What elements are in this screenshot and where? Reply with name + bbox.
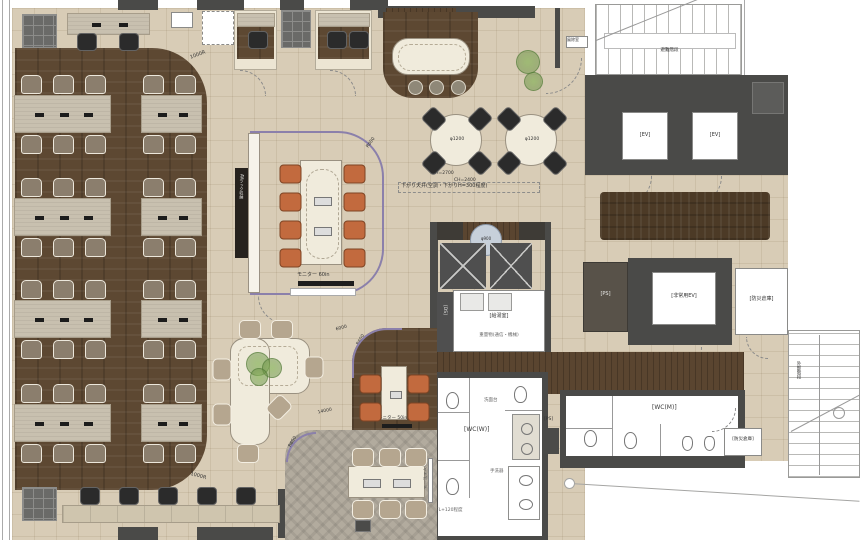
black-chair	[119, 487, 139, 505]
wall-segment	[118, 0, 158, 10]
lounge-chair	[379, 448, 401, 467]
wall-segment	[197, 0, 244, 10]
meeting-table-large	[300, 160, 342, 265]
cabinet-top-left	[22, 14, 57, 48]
table-inner-line	[306, 169, 339, 259]
desk-grommet	[35, 318, 44, 322]
orange-chair	[344, 165, 366, 184]
core-east-wall	[545, 222, 551, 352]
office-chair	[85, 178, 106, 197]
black-chair	[158, 487, 178, 505]
wall-segment	[280, 0, 304, 10]
office-chair	[175, 444, 196, 463]
stool	[451, 80, 466, 95]
emergency-elevator-shaft: [非常用EV]	[628, 258, 732, 345]
monitor-60in	[298, 281, 354, 286]
office-chair	[143, 238, 164, 257]
lounge-chair	[405, 500, 427, 519]
label-wind-lobby: 風除室	[567, 38, 579, 42]
counter-inner-line	[398, 44, 466, 71]
orange-chair	[280, 165, 302, 184]
desk-grommet	[179, 216, 188, 220]
desk-grommet	[179, 422, 188, 426]
work-table-6	[348, 466, 425, 498]
desk-grommet	[158, 113, 167, 117]
shaft-box-1	[440, 243, 486, 289]
desk-grommet	[84, 422, 93, 426]
desk-grommet	[179, 318, 188, 322]
desk-grommet	[35, 422, 44, 426]
black-chair	[80, 487, 100, 505]
stool	[408, 80, 423, 95]
cable-box	[314, 227, 332, 236]
label-ds: [DS]	[441, 305, 446, 315]
lounge-chair	[305, 357, 324, 379]
site-line-top-right	[744, 0, 745, 75]
label-kitchenette: [給湯室]	[453, 314, 545, 320]
office-chair	[21, 135, 42, 154]
ps-shaft-2	[543, 428, 559, 454]
cafe-island-counter	[392, 38, 470, 75]
lounge-chair	[271, 320, 293, 339]
office-chair	[21, 238, 42, 257]
label-ev-1: [EV]	[622, 133, 668, 139]
lounge-chair	[237, 444, 259, 463]
toilet-icon	[514, 386, 527, 403]
black-chair	[197, 487, 217, 505]
wall-segment	[197, 527, 273, 540]
vanity-counter	[512, 414, 540, 460]
office-chair	[143, 178, 164, 197]
bench-desk	[14, 95, 111, 133]
office-chair	[53, 238, 74, 257]
monitor-50in	[382, 424, 412, 428]
wall-segment	[560, 456, 745, 468]
office-chair	[143, 340, 164, 359]
label-heavy-equipment: 重量物(通信・機械)	[453, 334, 545, 339]
desk-grommet	[158, 422, 167, 426]
black-chair	[77, 33, 97, 51]
office-chair	[143, 384, 164, 403]
stair-marker	[833, 407, 845, 419]
cable-box	[390, 391, 402, 399]
orange-chair	[408, 403, 430, 422]
desk-grommet	[158, 216, 167, 220]
office-chair	[175, 75, 196, 94]
stairwell-top: 避難階段	[595, 4, 742, 75]
toilet-icon	[446, 478, 459, 495]
office-chair	[85, 444, 106, 463]
toilet-icon	[584, 430, 597, 447]
stall-partition	[469, 378, 470, 498]
stall-partition	[566, 428, 612, 429]
bench-desk	[141, 404, 202, 442]
stair-diagonal	[791, 389, 860, 432]
printer-icon	[171, 12, 193, 28]
office-chair	[85, 75, 106, 94]
office-chair	[175, 178, 196, 197]
label-vanity: 洗面台	[484, 399, 498, 404]
copier-icon	[202, 11, 234, 45]
sink-unit	[460, 293, 484, 311]
label-round-table-2: φ1200	[506, 138, 558, 143]
label-hand-basin: 手洗器	[490, 470, 504, 475]
office-chair	[53, 384, 74, 403]
desk-grommet	[60, 422, 69, 426]
basin-icon	[519, 499, 533, 510]
toilet-icon	[446, 392, 459, 409]
office-chair	[53, 444, 74, 463]
office-chair	[21, 340, 42, 359]
desk-grommet	[179, 113, 188, 117]
label-storage-1: [防災倉庫]	[735, 297, 788, 303]
orange-chair	[344, 221, 366, 240]
lounge-chair	[213, 404, 232, 426]
label-storage-2: [防災倉庫]	[724, 438, 762, 443]
bench-desk	[141, 300, 202, 338]
wall-block	[437, 222, 463, 240]
label-wc-women: [WC(W)]	[464, 426, 489, 433]
office-chair	[85, 238, 106, 257]
office-chair	[175, 135, 196, 154]
office-chair	[21, 280, 42, 299]
desk-grommet	[84, 113, 93, 117]
stall-partition	[505, 410, 542, 411]
office-chair	[21, 444, 42, 463]
desk-grommet	[84, 318, 93, 322]
stool	[429, 80, 444, 95]
whiteboard	[428, 458, 433, 503]
label-dropped-ceiling: 下がり天井(空調・下がりH=300程度)	[398, 182, 540, 193]
desk-grommet	[60, 318, 69, 322]
label-emergency-ev: [非常用EV]	[652, 294, 716, 300]
toilet-icon	[624, 432, 637, 449]
bench-desk	[318, 13, 370, 27]
bench-desk	[141, 95, 202, 133]
label-av-rack: AVラック収納	[239, 174, 243, 199]
office-chair	[85, 340, 106, 359]
desk-grommet	[92, 23, 101, 27]
label-ps-1: [PS]	[583, 292, 628, 298]
office-chair	[53, 280, 74, 299]
floor-box	[355, 520, 371, 532]
label-round-high-table: φ900	[471, 237, 501, 241]
office-chair	[143, 444, 164, 463]
stall-partition	[660, 424, 661, 456]
office-chair	[85, 280, 106, 299]
basin-icon	[519, 475, 533, 486]
urinal-icon	[704, 436, 715, 451]
orange-chair	[344, 249, 366, 268]
office-chair	[21, 178, 42, 197]
orange-chair	[280, 249, 302, 268]
desk-grommet	[60, 113, 69, 117]
cable-box	[314, 197, 332, 206]
cable-box	[363, 479, 381, 488]
office-chair	[85, 135, 106, 154]
pillar-window	[281, 10, 311, 48]
lounge-chair	[213, 359, 232, 381]
office-chair	[175, 238, 196, 257]
label-stair-external: 外部階段	[795, 361, 800, 379]
plant	[524, 72, 543, 91]
black-chair	[349, 31, 369, 49]
orange-chair	[360, 375, 382, 394]
desk-grommet	[158, 318, 167, 322]
plant	[250, 368, 268, 386]
lounge-chair	[352, 448, 374, 467]
hand-wash-counter	[508, 466, 540, 520]
bench-desk	[14, 198, 111, 236]
office-chair	[53, 178, 74, 197]
stair-divider	[819, 335, 820, 475]
site-line-left-inner	[9, 0, 10, 540]
stair-landing	[604, 33, 736, 49]
black-chair	[327, 31, 347, 49]
lounge-chair	[352, 500, 374, 519]
basin-icon	[521, 423, 533, 435]
monitor-wall	[290, 288, 356, 296]
meeting-room-side-wall	[248, 133, 260, 293]
office-chair	[21, 384, 42, 403]
shaft-box-2	[490, 243, 532, 289]
av-rack: AVラック収納	[235, 168, 248, 258]
bench-desk	[14, 404, 111, 442]
urinal-icon	[682, 436, 693, 451]
office-chair	[175, 280, 196, 299]
lounge-chair	[379, 500, 401, 519]
office-chair	[21, 75, 42, 94]
bar-counter	[62, 505, 280, 523]
label-floor-level-note: FL+120程度	[436, 509, 462, 514]
orange-chair	[344, 193, 366, 212]
office-chair	[143, 75, 164, 94]
office-chair	[143, 280, 164, 299]
bench-desk	[14, 300, 111, 338]
lounge-rug	[600, 192, 770, 240]
label-ps-2: [PS]	[544, 418, 553, 423]
basin-icon	[521, 443, 533, 455]
orange-chair	[280, 221, 302, 240]
black-chair	[119, 33, 139, 51]
black-chair	[248, 31, 268, 49]
cabinet-bottom-left	[22, 487, 57, 521]
office-chair	[175, 384, 196, 403]
desk-grommet	[84, 216, 93, 220]
label-ev-2: [EV]	[692, 133, 738, 139]
orange-chair	[280, 193, 302, 212]
desk-grommet	[35, 113, 44, 117]
stall-partition	[438, 412, 470, 413]
elevator-core: [EV] [EV]	[585, 75, 788, 175]
bench-desk	[237, 13, 275, 27]
wall-segment	[118, 527, 158, 540]
sink-unit	[488, 293, 512, 311]
stairwell-external: 外部階段	[788, 330, 860, 478]
core-shaft-box	[752, 82, 784, 114]
orange-chair	[408, 375, 430, 394]
kitchenette-room	[453, 290, 545, 352]
bench-desk	[141, 198, 202, 236]
wall-block	[519, 222, 545, 240]
floor-plan-canvas: 1000R 1000R φ1200 φ1200 CH=2700 CH=	[0, 0, 860, 540]
lounge-chair	[239, 320, 261, 339]
office-chair	[85, 384, 106, 403]
stall-partition	[438, 460, 470, 461]
office-chair	[175, 340, 196, 359]
orange-chair	[360, 403, 382, 422]
stall-partition	[612, 396, 613, 456]
lounge-chair	[405, 448, 427, 467]
label-monitor-60: モニター 60in	[297, 273, 330, 279]
plant	[516, 50, 540, 74]
site-boundary-marker	[564, 478, 575, 489]
office-chair	[53, 340, 74, 359]
office-chair	[143, 135, 164, 154]
cable-box	[393, 479, 411, 488]
site-line-left-outer	[2, 0, 3, 540]
label-monitor-50: モニター 50in	[378, 417, 407, 422]
label-stair-top: 避難階段	[596, 49, 743, 54]
office-chair	[53, 135, 74, 154]
desk-grommet	[119, 23, 128, 27]
label-round-table-1: φ1200	[431, 138, 483, 143]
desk-grommet	[60, 216, 69, 220]
black-chair	[236, 487, 256, 505]
small-meeting-table	[381, 366, 407, 420]
office-chair	[53, 75, 74, 94]
desk-grommet	[35, 216, 44, 220]
label-wc-men: [WC(M)]	[652, 404, 677, 411]
site-boundary-line	[570, 483, 860, 502]
bench-desk	[67, 13, 150, 35]
